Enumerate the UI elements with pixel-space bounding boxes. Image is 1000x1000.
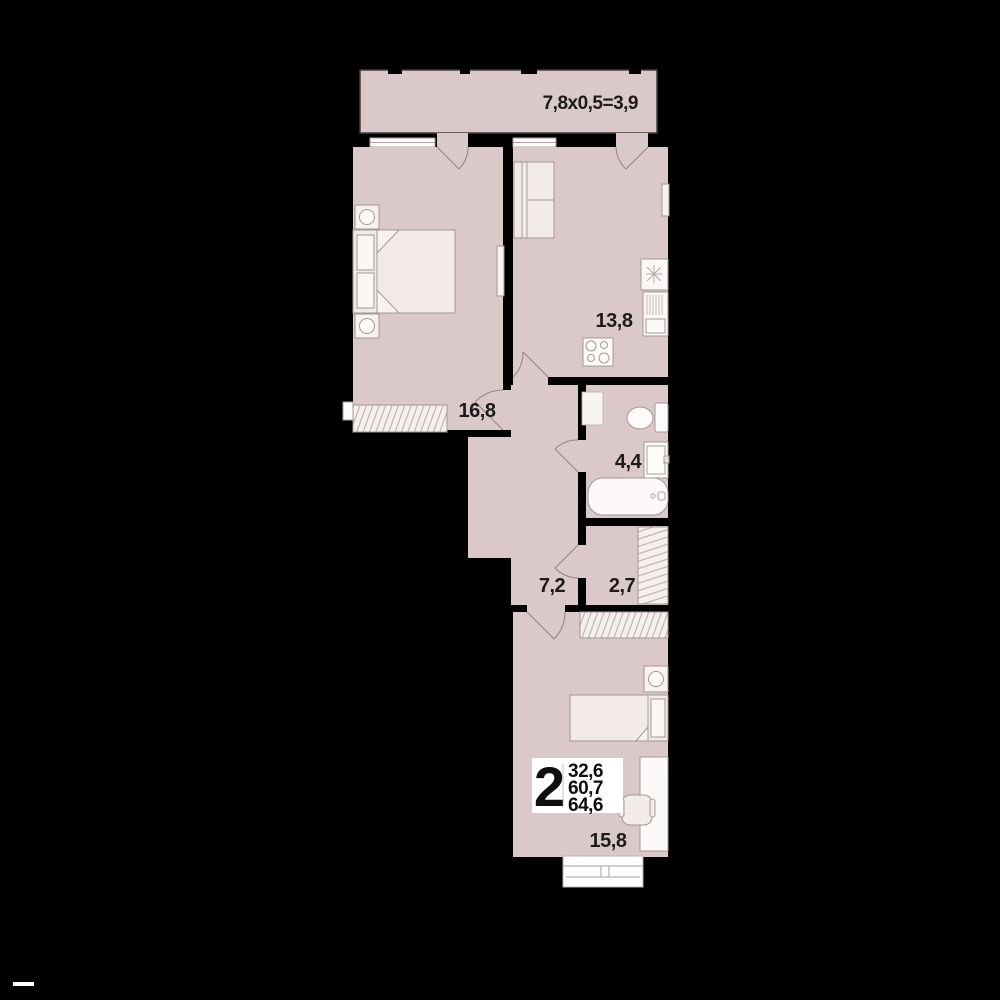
sofa-icon xyxy=(514,162,554,238)
wardrobe-icon xyxy=(580,612,668,638)
railing-tick xyxy=(460,65,470,74)
rooms-count: 2 xyxy=(534,755,564,818)
floor-plan: 7,8x0,5=3,9 xyxy=(0,0,1000,1000)
living-room-area-label: 15,8 xyxy=(590,830,627,852)
side-window-icon xyxy=(343,402,353,420)
bottom-window-icon xyxy=(563,856,643,887)
total-area-value: 64,6 xyxy=(568,795,603,816)
single-bed-icon xyxy=(570,695,668,741)
radiator-icon xyxy=(662,184,669,216)
kitchen: 13,8 xyxy=(513,147,669,385)
apartment-info-badge: 2 32,6 60,7 64,6 xyxy=(532,755,623,818)
corner-mark xyxy=(13,982,34,986)
nightstand-icon xyxy=(355,205,379,229)
balcony-dimension-label: 7,8x0,5=3,9 xyxy=(543,93,638,114)
living-room: 2 32,6 60,7 64,6 15,8 xyxy=(513,605,668,887)
railing-tick xyxy=(521,65,537,74)
nightstand-icon xyxy=(644,666,668,692)
washing-machine-icon xyxy=(643,292,668,336)
floor-plan-canvas: 7,8x0,5=3,9 xyxy=(0,0,1000,1000)
bedroom-door-opening xyxy=(503,390,511,430)
wardrobe-icon xyxy=(638,527,668,604)
bathroom-door-opening xyxy=(578,440,586,472)
storage-area-label: 2,7 xyxy=(609,575,636,597)
kitchen-window-icon xyxy=(513,138,556,147)
kitchen-area-label: 13,8 xyxy=(596,310,633,332)
bedroom-window-icon xyxy=(370,138,435,147)
double-bed-icon xyxy=(353,230,455,313)
radiator-icon xyxy=(497,246,504,296)
balcony: 7,8x0,5=3,9 xyxy=(360,65,657,133)
stove-icon xyxy=(583,338,613,366)
bedroom-balcony-door-opening xyxy=(437,133,468,148)
railing-tick xyxy=(388,65,402,74)
nightstand-icon xyxy=(355,314,379,338)
kitchen-balcony-door-opening xyxy=(616,133,648,148)
kitchen-sink-icon xyxy=(641,259,668,290)
chair-icon xyxy=(619,795,655,825)
railing-tick xyxy=(629,65,641,74)
duct-shaft xyxy=(582,392,603,425)
kitchen-door-opening xyxy=(513,377,548,385)
bedroom-area-label: 16,8 xyxy=(459,400,496,422)
bathtub-icon xyxy=(588,478,668,515)
bedroom: 16,8 xyxy=(343,147,511,432)
washbasin-icon xyxy=(644,442,669,478)
hallway-area-label: 7,2 xyxy=(539,575,566,597)
bathroom-area-label: 4,4 xyxy=(615,451,643,473)
wardrobe-icon xyxy=(353,405,447,432)
storage-door-opening xyxy=(578,545,586,578)
living-room-door-opening xyxy=(527,605,565,612)
